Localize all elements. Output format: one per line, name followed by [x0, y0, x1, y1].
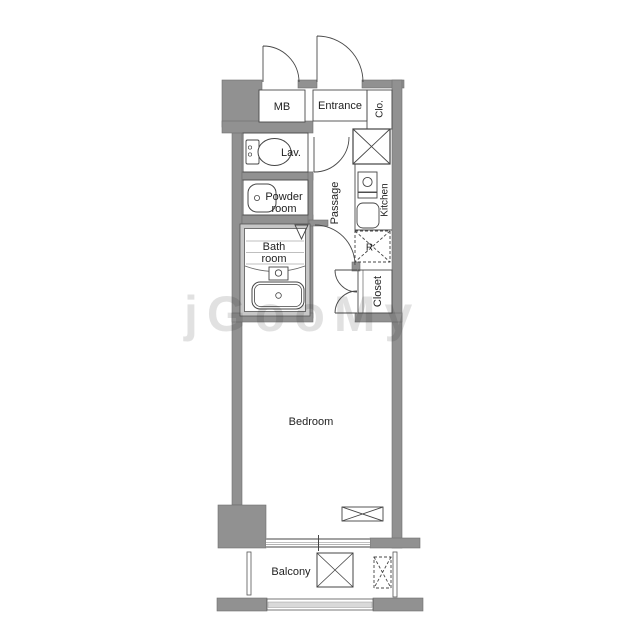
watermark: jGooMy [183, 286, 421, 342]
label-clo: Clo. [375, 100, 386, 118]
shaft-box [353, 129, 390, 164]
label-bath-2: room [261, 253, 286, 265]
wall-lav-powder [242, 172, 313, 180]
label-powder-2: room [271, 203, 296, 215]
label-powder-1: Powder [265, 191, 303, 203]
floor-plan: MB Entrance Clo. Lav. Powder room Passag… [0, 0, 640, 640]
label-bedroom: Bedroom [289, 416, 334, 428]
balcony-divider-right [393, 552, 397, 597]
balcony-rail-right [373, 598, 423, 611]
bedroom-window [266, 535, 370, 551]
entrance-door-arc [317, 36, 363, 82]
label-entrance: Entrance [318, 100, 362, 112]
balcony-divider-left [247, 552, 251, 595]
hall-door-arc [315, 225, 355, 265]
bedroom-vent-box [342, 507, 383, 521]
wall-powder-bath [242, 215, 313, 224]
label-passage: Passage [329, 182, 341, 225]
balcony-rail-middle [267, 599, 373, 610]
balcony-ac-box [317, 553, 353, 587]
label-kitchen: Kitchen [380, 183, 391, 216]
wall-below-mb [222, 121, 313, 133]
label-fridge: R [366, 243, 373, 254]
kitchen-fixtures [357, 172, 379, 228]
floor-plan-drawing: MB Entrance Clo. Lav. Powder room Passag… [0, 0, 640, 640]
label-balcony: Balcony [271, 566, 311, 578]
wall-bottom-right [370, 538, 420, 548]
wall-pillar-bottom-left [218, 505, 266, 548]
kitchen-sink-icon [357, 203, 379, 228]
label-lav: Lav. [281, 147, 301, 159]
label-bath-1: Bath [263, 241, 286, 253]
mb-door-arc [263, 46, 299, 82]
balcony-dashed-box [374, 557, 391, 588]
wall-top-mid [298, 80, 317, 88]
bath-faucet-icon [269, 267, 288, 280]
balcony-rail-left [217, 598, 267, 611]
wall-top-left-block [222, 80, 262, 127]
stove-icon [358, 172, 377, 198]
label-mb: MB [274, 101, 291, 113]
lav-door-arc [314, 137, 349, 172]
